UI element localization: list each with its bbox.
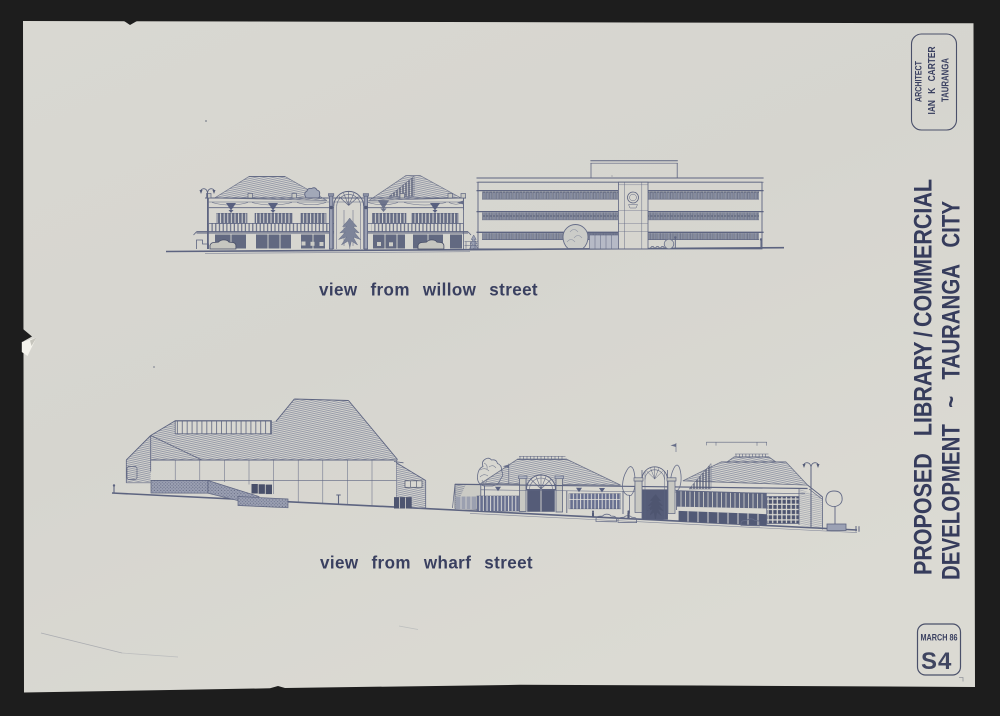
svg-text:view from wharf street: view from wharf street [320, 553, 533, 573]
svg-text:S4: S4 [921, 648, 952, 675]
svg-text:DEVELOPMENT ~ TAURANGA CITY: DEVELOPMENT ~ TAURANGA CITY [938, 201, 966, 580]
svg-text:MARCH 86: MARCH 86 [921, 633, 958, 644]
svg-text:IAN K CARTER: IAN K CARTER [926, 46, 938, 114]
svg-text:ARCHITECT: ARCHITECT [914, 61, 925, 102]
svg-text:PROPOSED LIBRARY / COMMERCIAL: PROPOSED LIBRARY / COMMERCIAL [910, 179, 938, 575]
svg-text:TAURANGA: TAURANGA [940, 58, 952, 102]
svg-text:view from willow street: view from willow street [319, 280, 538, 300]
